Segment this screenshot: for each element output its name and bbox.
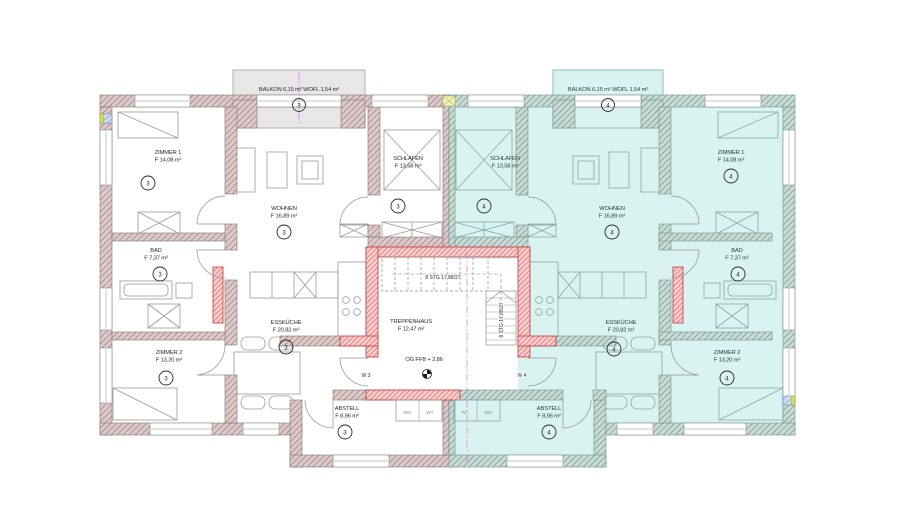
entry-door-label-w4: W 4 [518,373,527,379]
survey-marker-right [783,396,795,405]
closet-label-wt-apt4: WT [462,410,469,415]
balcony4-label: BALKON 6,15 m² WOFL 1,54 m² [568,87,648,93]
bad-apt3-name: BAD [150,248,161,254]
unit3-number: 3 [343,429,347,436]
zimmer2-apt3-name: ZIMMER 2 [156,350,183,356]
esskueche-apt3-name: ESSKÜCHE [271,319,302,326]
survey-marker-left [100,114,112,123]
level-benchmark-icon [423,370,432,379]
wohnen-apt3-name: WOHNEN [271,206,297,212]
zimmer1-apt4-area: F 14,08 m² [718,158,745,164]
unit4-number: 4 [547,429,551,436]
treppenhaus-area: F 12,47 m² [398,327,425,333]
unit3-number: 3 [164,375,168,382]
unit4-number: 4 [736,271,740,278]
stair-upper-flight-label: 8 STG 17,88/27 [425,275,461,281]
unit3-number: 3 [396,203,400,210]
unit4-number: 4 [612,346,616,353]
unit3-number: 3 [282,229,286,236]
zimmer1-apt3-name: ZIMMER 1 [155,150,182,156]
closet-label-wm-apt3: WM [403,410,411,415]
unit4-number: 4 [606,102,610,109]
bad-apt4-area: F 7,37 m² [725,256,749,262]
unit3-number: 3 [297,102,301,109]
zimmer2-apt4-name: ZIMMER 2 [714,350,741,356]
esskueche-apt3-area: F 20,82 m² [273,328,300,334]
wohnen-apt4-area: F 16,89 m² [599,214,626,220]
wohnen-apt4-name: WOHNEN [599,206,625,212]
unit4-number: 4 [725,375,729,382]
abstell-apt4-area: F 8,96 m² [537,414,561,420]
floor-plan-page: WM WT WT WM 8 STG 17,88/27 8 STG 17,88/2… [0,0,900,506]
stair-lower-flight-label: 8 STG 17,88/27 [499,302,505,338]
abstell-apt4-name: ABSTELL [537,406,562,412]
bad-apt4-name: BAD [731,248,742,254]
schlafen-apt3-area: F 13,58 m² [395,164,422,170]
closet-label-wt-apt3: WT [427,410,434,415]
unit3-number: 3 [284,344,288,351]
level-label: OG FFB + 2,86 [405,357,443,363]
zimmer1-apt3-area: F 14,08 m² [155,158,182,164]
balcony3-label: BALKON 6,15 m² WOFL 1,54 m² [259,87,339,93]
esskueche-apt4-name: ESSKÜCHE [606,319,637,326]
unit4-number: 4 [482,203,486,210]
entry-door-label-w3: W 3 [362,373,371,379]
zimmer2-apt3-area: F 13,20 m² [156,358,183,364]
zimmer2-apt4-area: F 13,20 m² [714,358,741,364]
unit4-number: 4 [610,229,614,236]
abstell-apt3-name: ABSTELL [335,406,360,412]
unit4-number: 4 [729,173,733,180]
treppenhaus-name: TREPPENHAUS [390,319,432,325]
wohnen-apt3-area: F 16,89 m² [271,214,298,220]
unit3-number: 3 [146,180,150,187]
zimmer1-apt4-name: ZIMMER 1 [718,150,745,156]
floor-plan-canvas: WM WT WT WM 8 STG 17,88/27 8 STG 17,88/2… [0,0,900,506]
closet-label-wm-apt4: WM [484,410,492,415]
survey-marker-top [443,96,455,106]
bad-apt3-area: F 7,37 m² [144,256,168,262]
schlafen-apt4-area: F 13,58 m² [492,164,519,170]
unit3-number: 3 [158,271,162,278]
esskueche-apt4-area: F 20,82 m² [608,328,635,334]
abstell-apt3-area: F 8,96 m² [335,414,359,420]
schlafen-apt4-name: SCHLAFEN [490,156,520,162]
schlafen-apt3-name: SCHLAFEN [393,156,423,162]
